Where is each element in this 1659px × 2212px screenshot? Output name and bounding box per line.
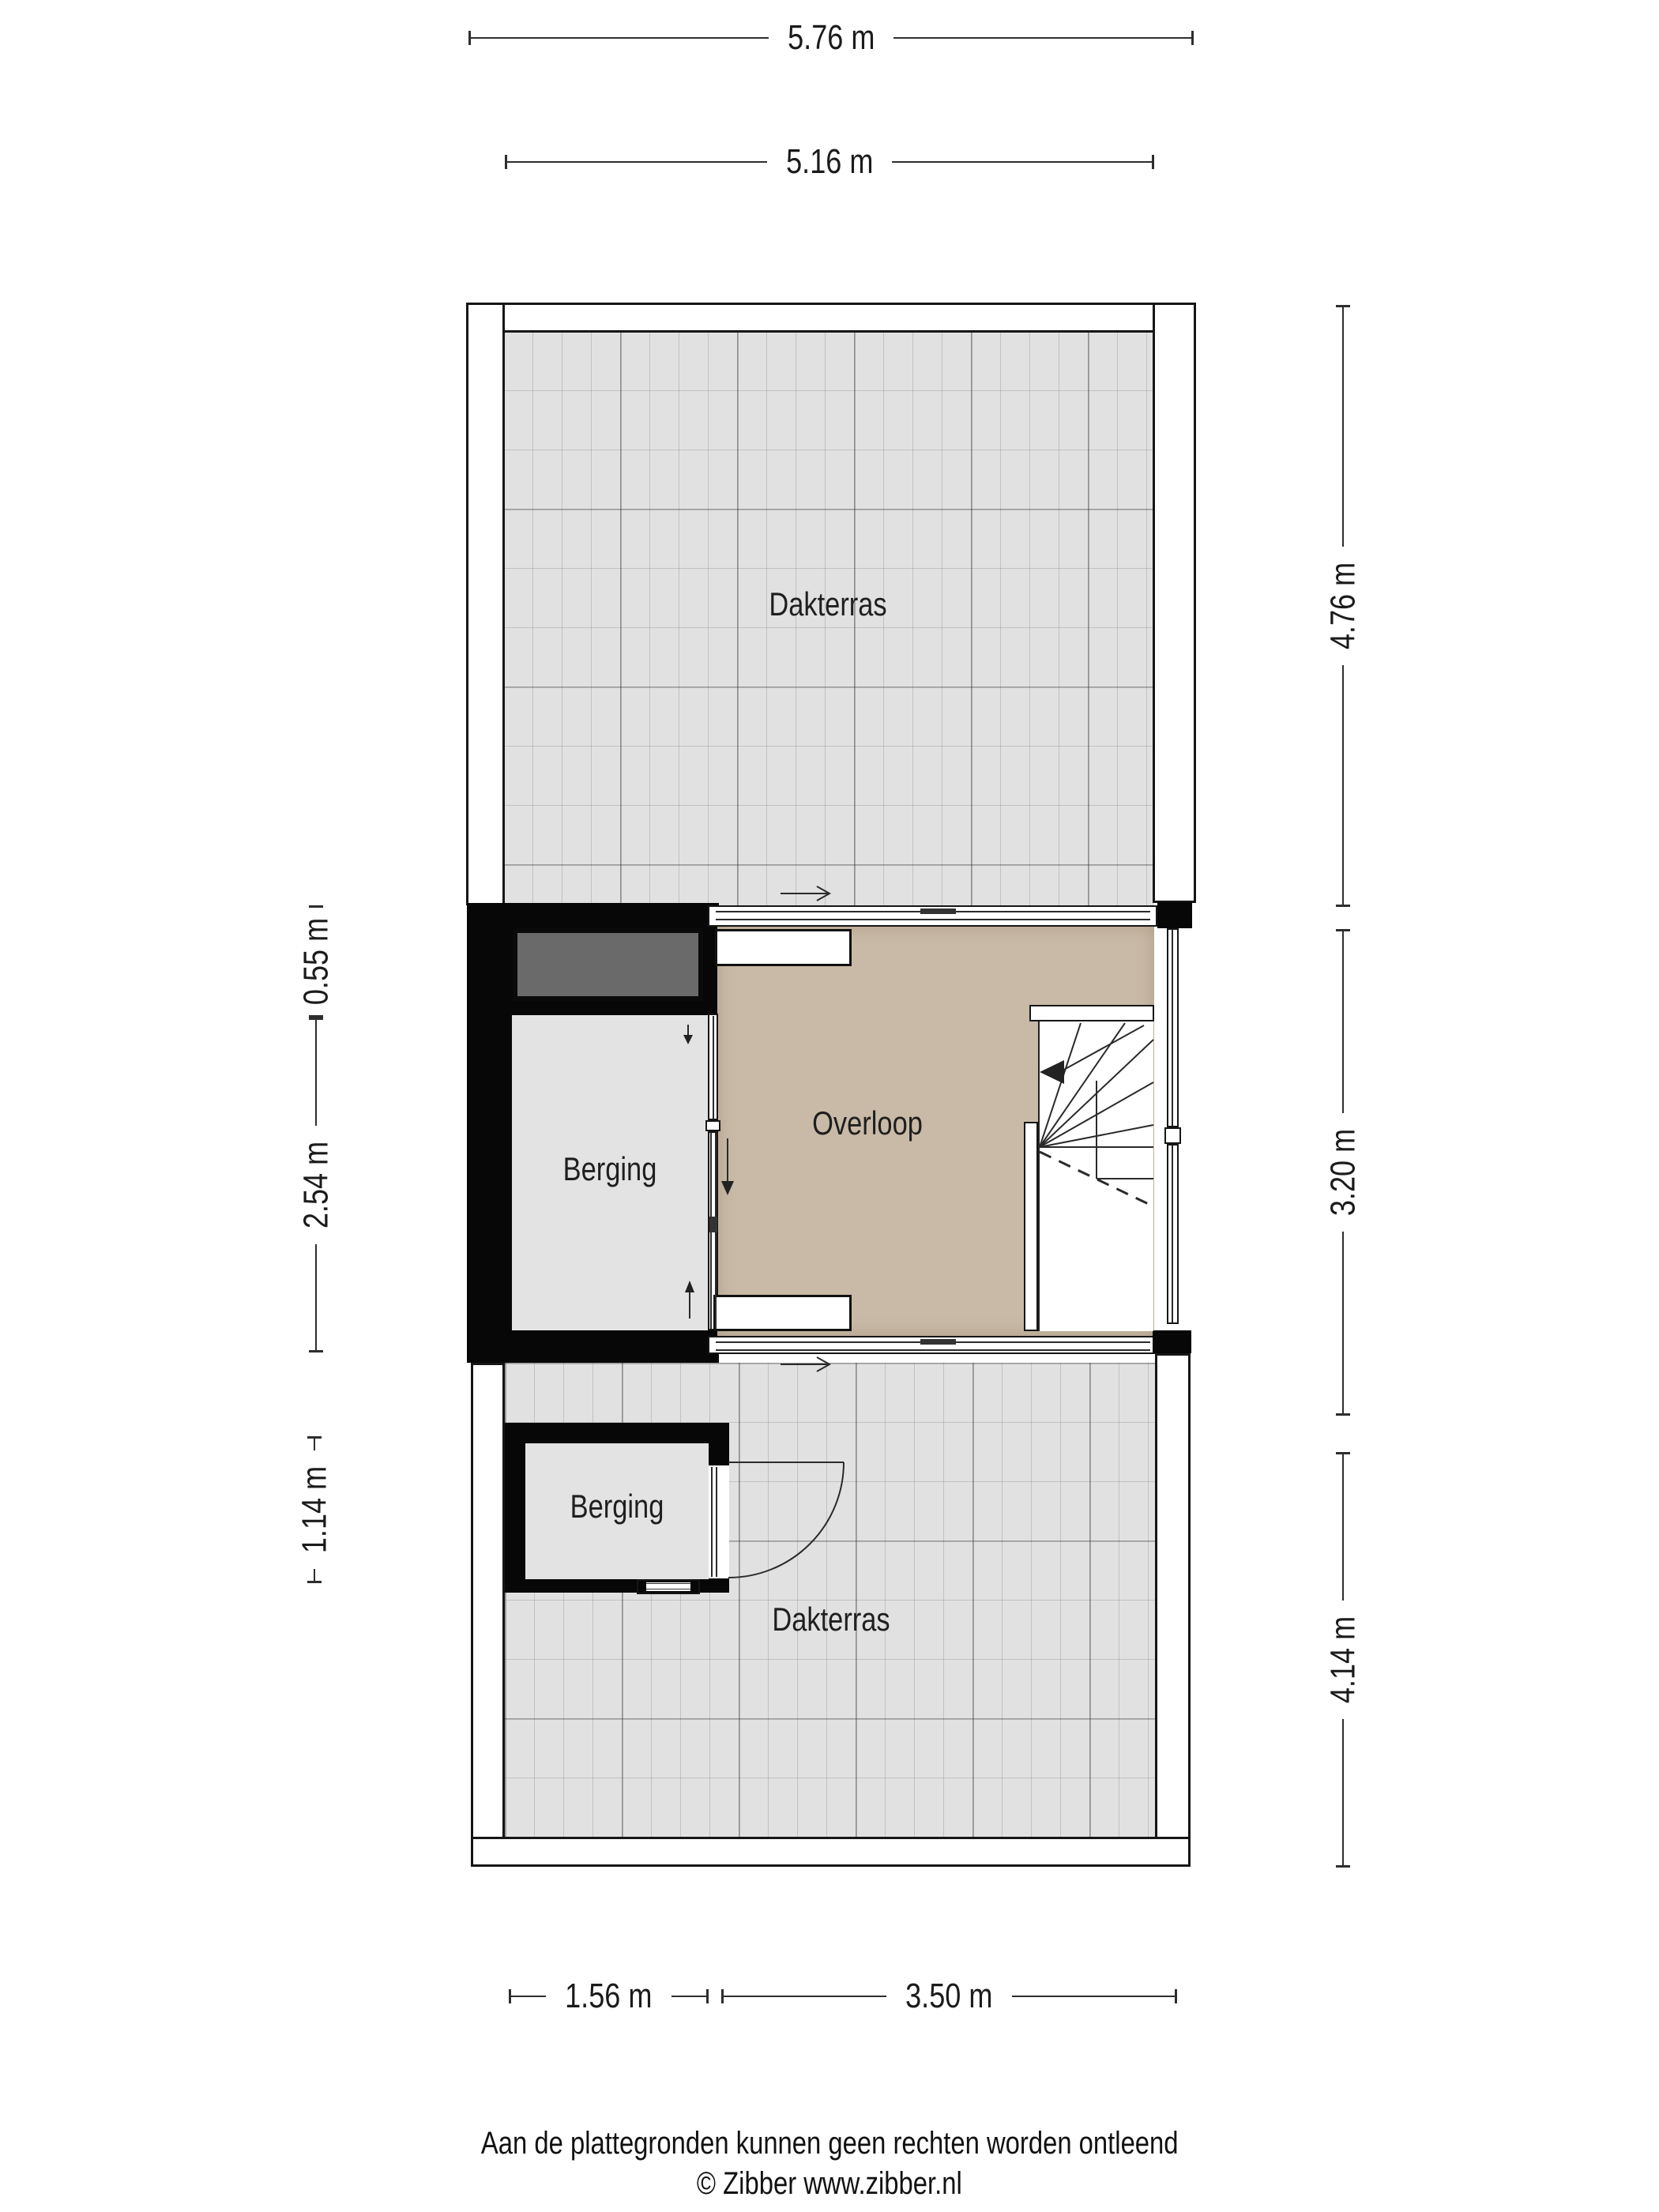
dimension-top-outer: 5.76 m xyxy=(468,24,1194,52)
stair-direction-arrow xyxy=(1040,1060,1064,1084)
slide-arrow-bottom xyxy=(781,1357,829,1371)
sliding-door-bottom-glazing xyxy=(716,1339,1150,1350)
dimension-bottom-right: 3.50 m xyxy=(721,1982,1177,2011)
dimension-left-upper: 0.55 m xyxy=(302,905,330,1018)
room-label-overloop: Overloop xyxy=(800,1104,935,1142)
room-label-dakterras-bottom: Dakterras xyxy=(759,1601,903,1638)
floorplan-page: { "rooms": { "dakterras_top": "Dakterras… xyxy=(0,0,1659,2212)
arrow-overloop-down xyxy=(721,1138,734,1195)
sliding-door-top-glazing xyxy=(716,908,1150,920)
dimension-top-inner: 5.16 m xyxy=(505,148,1154,176)
dimension-right-lower: 4.14 m xyxy=(1329,1452,1357,1868)
room-label-berging-mid: Berging xyxy=(553,1150,668,1188)
dimension-right-upper: 4.76 m xyxy=(1329,305,1357,907)
slide-arrow-top xyxy=(781,886,829,901)
footer-disclaimer: Aan de plattegronden kunnen geen rechten… xyxy=(0,2126,1659,2161)
arrow-berging-up xyxy=(685,1281,694,1319)
room-label-dakterras-top: Dakterras xyxy=(756,585,900,623)
door-swing xyxy=(712,1462,844,1578)
footer-credit: © Zibber www.zibber.nl xyxy=(0,2166,1659,2202)
arrow-berging-down xyxy=(683,1025,693,1044)
stair-treads xyxy=(1040,1023,1155,1207)
dimension-right-middle: 3.20 m xyxy=(1329,929,1357,1416)
dimension-bottom-left: 1.56 m xyxy=(509,1982,709,2011)
divider-glazing xyxy=(709,1016,717,1329)
dimension-left-lower: 1.14 m xyxy=(300,1436,329,1583)
room-label-berging-bottom: Berging xyxy=(560,1488,675,1525)
dimension-left-middle: 2.54 m xyxy=(302,1018,330,1352)
